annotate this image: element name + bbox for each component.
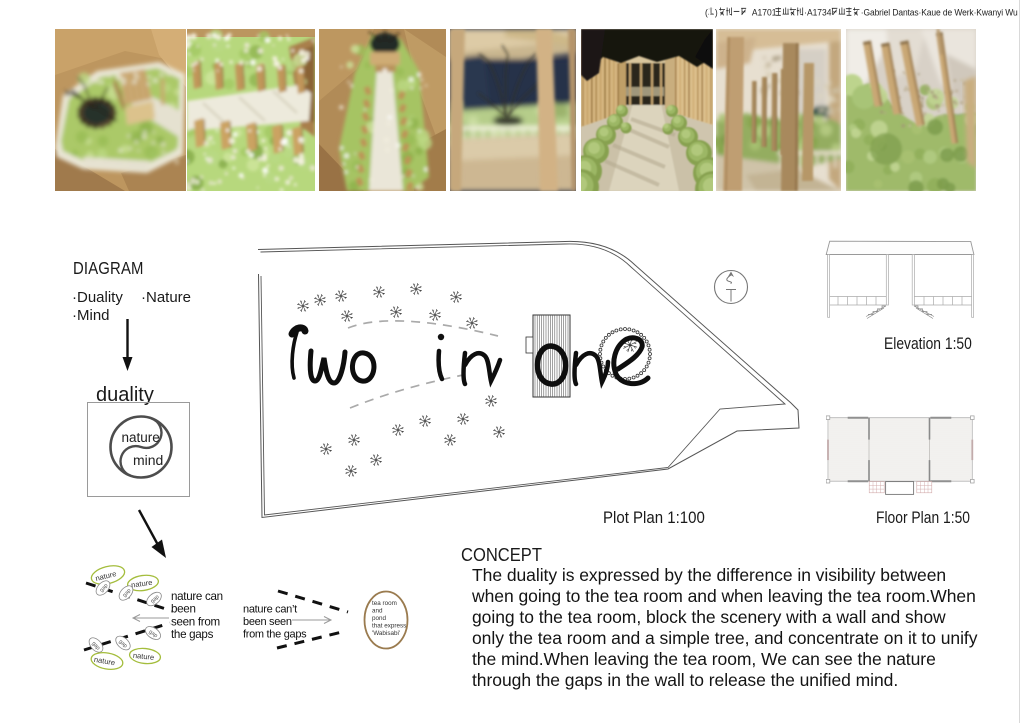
svg-text:'Wabisabi': 'Wabisabi': [372, 630, 400, 637]
svg-text:that express: that express: [372, 623, 406, 630]
svg-text:·Gabriel Dantas·Kaue de Werk·K: ·Gabriel Dantas·Kaue de Werk·Kwanyi Wu: [861, 7, 1018, 18]
svg-text:mind: mind: [133, 452, 163, 468]
svg-text:pond: pond: [372, 615, 387, 622]
svg-text:(: (: [705, 7, 708, 18]
svg-text:from the gaps: from the gaps: [243, 629, 307, 641]
svg-text:the gaps: the gaps: [171, 628, 214, 641]
svg-text:and: and: [372, 608, 383, 615]
svg-text:nature: nature: [122, 430, 160, 445]
svg-text:nature can: nature can: [171, 590, 223, 603]
svg-text:A1701: A1701: [752, 7, 777, 18]
svg-text:): ): [715, 7, 718, 18]
svg-text:nature can’t: nature can’t: [243, 604, 297, 616]
svg-text:been seen: been seen: [243, 616, 292, 628]
svg-text:tea room: tea room: [372, 600, 397, 607]
svg-text:·A1734: ·A1734: [804, 7, 831, 18]
svg-text:been: been: [171, 603, 196, 616]
svg-text:seen from: seen from: [171, 615, 220, 628]
